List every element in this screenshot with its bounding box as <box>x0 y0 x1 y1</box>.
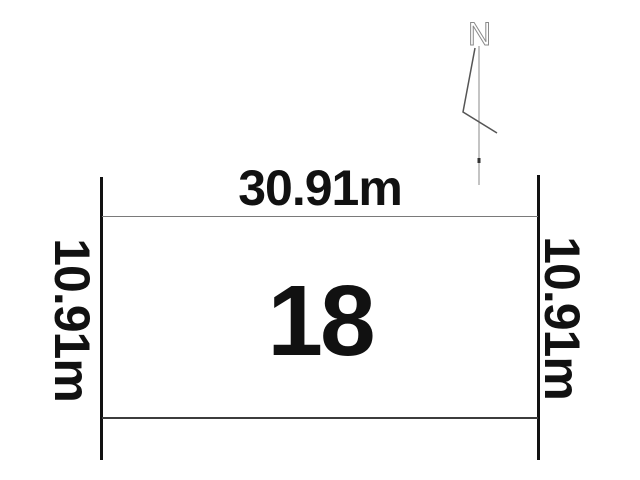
right-dimension-label: 10.91m <box>537 236 587 400</box>
north-label: N <box>468 16 491 52</box>
parcel-bottom-edge <box>102 417 538 419</box>
north-arrow-tick <box>478 158 481 163</box>
parcel-top-edge <box>102 216 538 217</box>
plot-number: 18 <box>267 271 372 371</box>
top-dimension-label: 30.91m <box>238 163 402 213</box>
left-dimension-label: 10.91m <box>47 238 97 402</box>
north-arrow-needle <box>463 48 497 133</box>
land-plot-diagram: N 30.91m 10.91m 10.91m 18 <box>0 0 640 480</box>
